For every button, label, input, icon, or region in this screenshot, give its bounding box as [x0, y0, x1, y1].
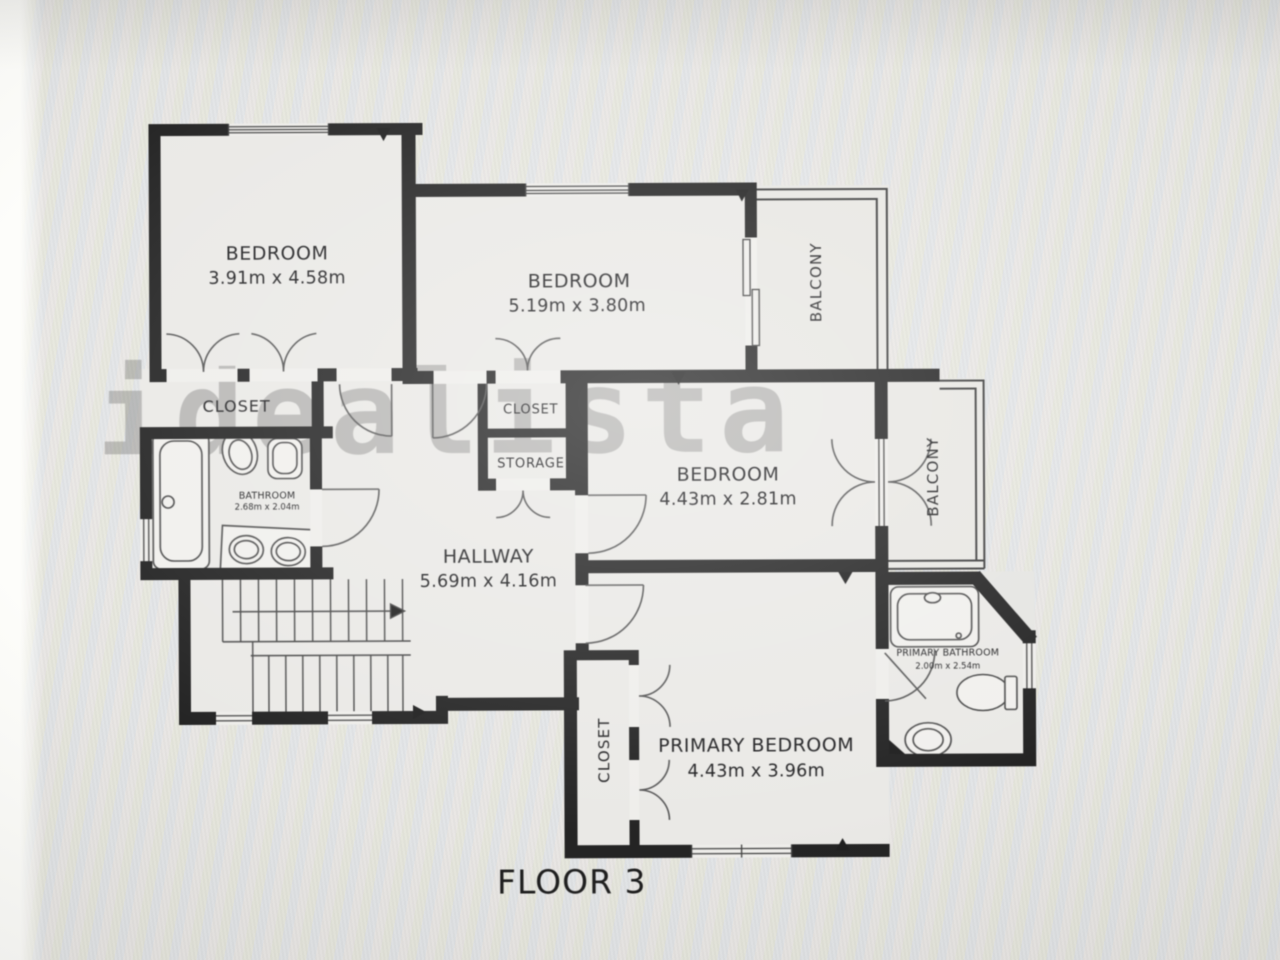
hallway-dims: 5.69m x 4.16m: [420, 571, 557, 592]
sink: [268, 438, 302, 478]
bedroom-middle-dims: 4.43m x 2.81m: [659, 489, 796, 510]
window-bedroom-top-middle: [526, 183, 629, 196]
bedroom-top-middle-label: BEDROOM: [528, 270, 631, 292]
bedroom-middle-label: BEDROOM: [677, 463, 780, 485]
window-bathroom: [140, 519, 152, 561]
window-stairs-1: [216, 712, 252, 725]
primary-bedroom-label: PRIMARY BEDROOM: [658, 734, 854, 757]
bedroom-top-left-dims: 3.91m x 4.58m: [208, 268, 345, 289]
window-primary-bedroom: [692, 844, 792, 857]
closet-primary-label: CLOSET: [595, 717, 613, 783]
balcony-sliding-door: [743, 237, 759, 345]
bedroom-top-left-label: BEDROOM: [226, 242, 329, 264]
balcony-top-label: BALCONY: [807, 242, 825, 322]
floor-title: FLOOR 3: [497, 862, 647, 902]
closet-middle-label: CLOSET: [503, 402, 558, 417]
primary-bathroom-label: PRIMARY BATHROOM: [896, 647, 999, 658]
stair-direction-arrow: [233, 611, 393, 612]
bidet: [905, 723, 951, 757]
floor-plan-photo: idealista: [0, 0, 1280, 960]
window-stairs-2: [328, 711, 372, 724]
bathroom-dims: 2.68m x 2.04m: [235, 502, 300, 512]
bathtub-drain: [162, 496, 174, 508]
primary-bathroom-dims: 2.00m x 2.54m: [915, 662, 980, 672]
balcony-right-label: BALCONY: [924, 437, 942, 517]
window-primary-bathroom: [1023, 643, 1036, 688]
window-bedroom-top-left: [228, 123, 328, 135]
hallway-label: HALLWAY: [443, 545, 534, 567]
bathroom-label: BATHROOM: [239, 491, 296, 502]
storage-label: STORAGE: [497, 456, 565, 471]
primary-bedroom-dims: 4.43m x 3.96m: [688, 761, 825, 782]
closet-left-label: CLOSET: [203, 397, 271, 416]
floor-plan-svg: idealista: [0, 0, 1280, 960]
bedroom-top-middle-dims: 5.19m x 3.80m: [508, 296, 645, 317]
bathtub-faucet: [924, 593, 940, 603]
primary-toilet: [957, 674, 1017, 710]
